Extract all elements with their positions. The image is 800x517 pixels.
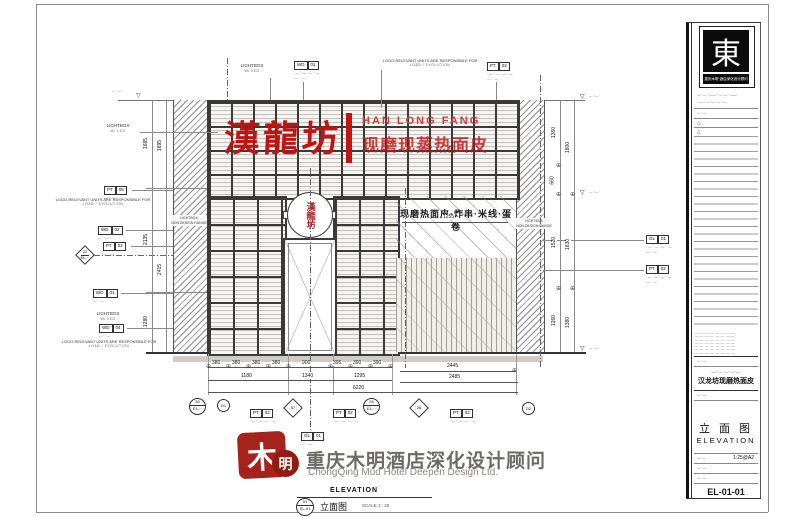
material-tag-pt05: PT05 <box>104 186 127 195</box>
lightbox-note-left: LIGHTBOX W/ LED <box>100 123 136 133</box>
material-tag-pt02: PT02 <box>103 242 126 251</box>
leader-line <box>303 82 304 100</box>
logo-responsibility-note-top: LOGO-RELEVANT UNITS ARE RESPONSIBLE FOR … <box>368 58 492 67</box>
level-mark: ▽ <box>580 346 585 352</box>
dim-label: 1695 <box>158 139 163 152</box>
view-title-en: ELEVATION <box>330 487 378 494</box>
dim-label: 1295 <box>353 374 366 379</box>
dim-label: 380 <box>251 361 261 366</box>
detail-bubble-diamond: 26 <box>409 398 429 418</box>
titleblock-divider <box>694 390 758 391</box>
titleblock-right-line <box>760 22 761 498</box>
material-tag-pt02: PT02 <box>250 409 273 418</box>
dim-label: 380 <box>271 361 281 366</box>
dim-ext-line <box>146 188 207 189</box>
material-tag-gl01: GL01 <box>301 432 324 441</box>
view-ref-bubble: 01EL-01 <box>296 498 314 516</box>
company-seal-circle: 明 <box>272 450 299 477</box>
shelf-grid-left <box>207 196 287 356</box>
tag-subnote: —··—· <box>646 280 659 284</box>
titleblock-divider <box>694 453 758 454</box>
titleblock-row: —··—· <box>697 476 708 480</box>
tag-subnote: —··—· <box>646 250 659 254</box>
tag-subnote: ·—··—·—··— <box>646 275 672 279</box>
menu-sign-text: 现磨热面皮·炸串·米线·蛋卷 <box>396 207 516 233</box>
tag-subnote: ·—··—·—··— <box>487 72 513 76</box>
sheet-border-bottom <box>36 512 768 513</box>
dim-label: 1800 <box>566 141 571 154</box>
tag-subnote: —··—· <box>98 236 111 240</box>
level-text: —·—· <box>589 94 600 98</box>
titleblock-divider <box>694 483 758 484</box>
titleblock-row: —··—· <box>697 466 708 470</box>
dim-line <box>166 100 167 352</box>
dim-label: 2445 <box>446 364 459 369</box>
level-mark: ▽ <box>136 93 141 99</box>
brand-divider-bar <box>346 113 352 163</box>
dim-line <box>152 100 153 352</box>
tag-subnote: ·—··—·—··— <box>646 245 672 249</box>
slat-band <box>396 258 516 352</box>
material-tag-pt02: PT02 <box>450 409 473 418</box>
logo-responsibility-note-left2: LOGO-RELEVANT UNITS ARE RESPONSIBLE FOR … <box>44 339 174 348</box>
dim-label: 390 <box>352 361 362 366</box>
revision-mark: △ <box>697 120 700 126</box>
level-text: —·—· <box>112 89 123 93</box>
sheet-border-left <box>36 4 37 512</box>
material-tag-pt02: PT02 <box>333 409 356 418</box>
sheet-title-en: ELEVATION <box>694 436 758 445</box>
dim-label: 1380 <box>566 316 571 329</box>
firm-address-line: ·——·—··—·—··— <box>697 100 726 104</box>
dim-label: 1360 <box>552 126 557 139</box>
brand-sign-sub: 现磨现蒸热面皮 <box>362 131 488 156</box>
dim-tick: ⊕ <box>226 364 231 370</box>
firm-logo-box: 東 重庆木明·酒店深化设计顾问 <box>699 26 755 88</box>
material-tag-wd02: WD02 <box>98 226 123 235</box>
titleblock-divider <box>694 118 758 119</box>
company-name-en: ChongQing Mud Hotel Deepen Design Ltd. <box>308 467 498 478</box>
dim-label: 660 <box>551 175 556 185</box>
leader-line <box>270 78 271 100</box>
tag-subnote: —··—· <box>487 77 500 81</box>
dim-label: 2415 <box>158 263 163 276</box>
dim-label: 1280 <box>144 315 149 328</box>
level-text: —·—· <box>589 190 600 194</box>
material-tag-wd04: WD04 <box>99 324 124 333</box>
project-subtitle: ·—··—·—··—·—· <box>694 369 758 374</box>
leader-line <box>94 255 173 256</box>
dim-tick: ⊕ <box>246 364 251 370</box>
dim-label: 395 <box>332 361 342 366</box>
detail-bubble-d1: D1 <box>217 399 230 412</box>
titleblock-row: —··—· <box>697 359 708 363</box>
dim-ext-line <box>146 292 207 293</box>
titleblock-divider <box>694 473 758 474</box>
shelf-grid-door-right <box>333 196 400 356</box>
leader-line <box>381 70 382 108</box>
detail-bubble-d2: D2 <box>522 402 535 415</box>
tag-subnote: ·—··—·—··— <box>250 419 276 423</box>
dim-label: 1520 <box>552 236 557 249</box>
material-tag-wd01: WD01 <box>93 289 118 298</box>
dim-line-2445 <box>400 371 516 372</box>
dim-tick: ⊕ <box>368 364 373 370</box>
titleblock-divider <box>694 108 758 109</box>
leader-line <box>543 240 644 241</box>
menu-dim-line <box>402 222 508 223</box>
titleblock-divider <box>694 356 758 357</box>
titleblock-bottom-line <box>686 498 761 499</box>
view-scale: SCALE 1 : 25 <box>362 503 389 508</box>
sheet-border-top <box>36 4 768 5</box>
sheet-scale: 1:25@A2 <box>694 455 754 461</box>
centerline <box>540 75 541 368</box>
titleblock-row: —··—· <box>697 393 708 397</box>
level-text: —·—· <box>589 346 600 350</box>
dim-line-total <box>208 392 518 393</box>
tag-subnote: —··—· <box>294 76 307 80</box>
titleblock-inner-line <box>691 22 692 498</box>
firm-logo-char: 東 <box>711 29 741 73</box>
centerline <box>227 58 228 100</box>
firm-logo-icon: 東 <box>703 30 749 72</box>
dim-ext-line <box>208 354 209 395</box>
brand-sign-cn: 漢龍坊 <box>223 110 343 162</box>
dim-label: 6220 <box>352 386 365 391</box>
dim-ext-line <box>288 354 289 395</box>
section-bubble-diamond: 22EL-·· <box>75 245 95 265</box>
revision-mark: △ <box>697 129 700 135</box>
titleblock-divider <box>694 463 758 464</box>
dim-tick: ⊕ <box>556 163 561 169</box>
dim-label: 1180 <box>240 374 253 379</box>
dim-tick: ⊕ <box>206 364 211 370</box>
non-design-note-left: LIGHTBOX NON DESIGN RANGE <box>165 215 213 226</box>
dim-label: 1260 <box>552 314 557 327</box>
dim-tick: ⊕ <box>348 364 353 370</box>
dim-line-2485 <box>400 382 518 383</box>
dim-label: 1685 <box>144 137 149 150</box>
drawing-sheet: LIGHTBOX NON DESIGN RANGE LIGHTBOX NON D… <box>0 0 800 517</box>
dim-tick: ⊕ <box>328 364 333 370</box>
logo-responsibility-note-left1: LOGO-RELEVANT UNITS ARE RESPONSIBLE FOR … <box>38 197 168 206</box>
detail-bubble-circle: 26EL-·· <box>363 398 380 415</box>
sheet-title-cn: 立 面 图 <box>694 420 758 436</box>
dim-line <box>560 100 561 352</box>
view-title-line <box>297 497 432 498</box>
leader-line <box>543 270 644 271</box>
level-mark: ▽ <box>580 94 585 100</box>
titleblock-divider <box>694 366 758 367</box>
view-title-cn: 立面图 <box>320 500 347 513</box>
material-tag-pt02: PT02 <box>646 265 669 274</box>
company-seal-circle-char: 明 <box>279 454 293 474</box>
revision-header: —··—· <box>697 111 708 115</box>
firm-address-line: —··—··——···—·—··——· <box>697 93 738 97</box>
dim-line-row1 <box>208 367 392 368</box>
material-tag-wd01: WD01 <box>294 61 319 70</box>
dim-tick: ⊕ <box>570 286 575 292</box>
dim-label: 380 <box>231 361 241 366</box>
lightbox-note-top: LIGHTBOX W/ LED <box>234 63 270 73</box>
general-notes: —·—··—·—··—·—··—·—· —·—··—·—··—·—··—·—· … <box>695 332 757 355</box>
sheet-border-right <box>768 4 769 512</box>
detail-bubble-diamond: 57 <box>283 398 303 418</box>
dim-tick: ⊕ <box>388 364 393 370</box>
material-tag-pt02: PT02 <box>487 62 510 71</box>
tag-subnote: ·—··—·—··— <box>294 71 320 75</box>
revision-ruled-area <box>694 136 758 330</box>
centerline-door <box>310 168 311 433</box>
non-design-note-right: LIGHTBOX NON DESIGN RANGE <box>513 218 555 229</box>
dim-label: 1340 <box>301 374 314 379</box>
dim-tick: ⊕ <box>556 192 561 198</box>
dim-tick: ⊕ <box>512 368 517 374</box>
dim-tick: ⊕ <box>266 364 271 370</box>
dim-label: 2485 <box>448 375 461 380</box>
dim-label: 380 <box>211 361 221 366</box>
tag-subnote: ·—··—·—··— <box>333 419 359 423</box>
dim-ext-line <box>516 354 517 395</box>
titleblock-top-line <box>686 22 761 23</box>
dim-label: 2135 <box>144 233 149 246</box>
leader-line <box>496 82 497 100</box>
dim-label: 390 <box>372 361 382 366</box>
dim-ext-line <box>392 354 393 395</box>
dim-tick: ⊕ <box>286 364 291 370</box>
level-mark: ▽ <box>580 190 585 196</box>
lightbox-note-left2: LIGHTBOX W/ LED <box>90 311 126 321</box>
dim-tick: ⊕ <box>556 286 561 292</box>
dim-label: 1630 <box>566 238 571 251</box>
titleblock-heavy-line <box>686 22 689 498</box>
drawing-number: EL-01-01 <box>694 487 758 497</box>
project-name: 汉龙坊现磨热面皮 <box>694 376 758 386</box>
dim-tick: ⊕ <box>570 192 575 198</box>
centerline <box>405 188 406 368</box>
dim-label: 1255 <box>442 215 455 220</box>
detail-bubble-circle: 30EL-·· <box>189 398 206 415</box>
dim-line <box>574 100 575 352</box>
titleblock-divider <box>694 127 758 128</box>
material-tag-gl01: GL01 <box>646 235 669 244</box>
dim-label: 900 <box>301 361 311 366</box>
tag-subnote: —··—· <box>93 299 106 303</box>
dim-line-row2 <box>208 380 392 381</box>
firm-logo-caption: 重庆木明·酒店深化设计顾问 <box>703 74 749 84</box>
titleblock-divider <box>694 400 758 401</box>
tag-subnote: ·—··—·—··— <box>450 419 476 423</box>
tag-subnote: —··—· <box>99 334 112 338</box>
brand-sign-latin: HAN LONG FANG <box>362 115 480 127</box>
